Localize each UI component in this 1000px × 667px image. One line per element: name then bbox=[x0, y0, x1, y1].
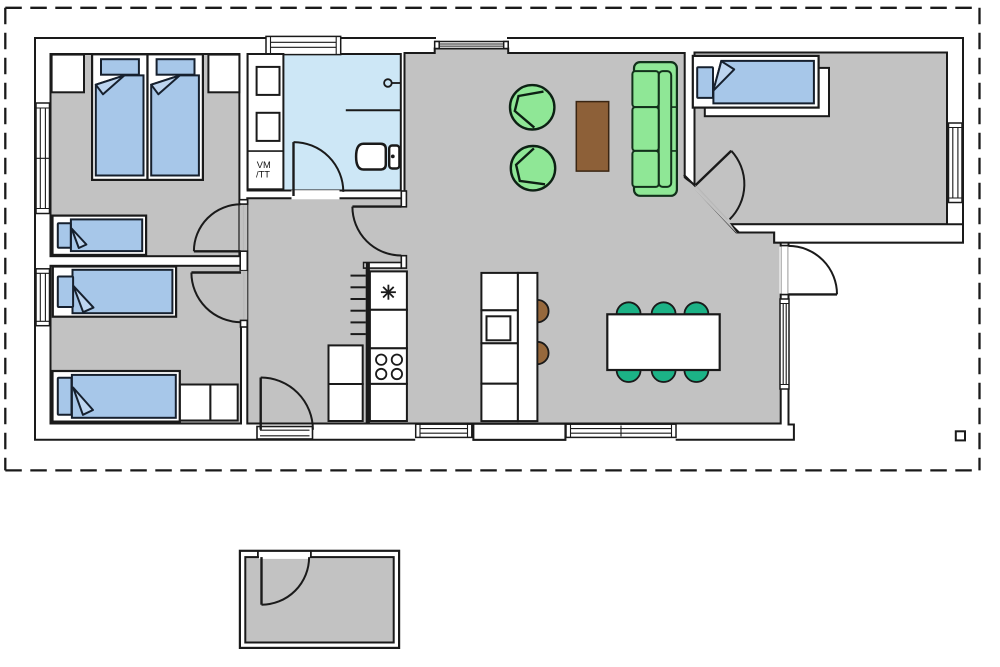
svg-text:VM: VM bbox=[257, 160, 271, 170]
svg-text:/TT: /TT bbox=[256, 169, 270, 179]
